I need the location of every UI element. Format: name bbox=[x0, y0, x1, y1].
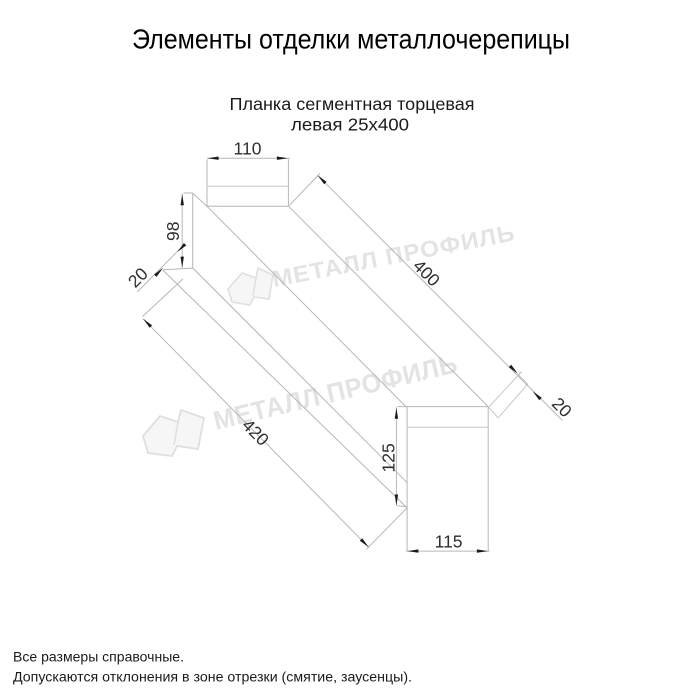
svg-text:Планка сегментная торцевая: Планка сегментная торцевая bbox=[230, 94, 475, 114]
svg-text:Допускаются отклонения в зоне: Допускаются отклонения в зоне отрезки (с… bbox=[13, 670, 412, 685]
svg-text:110: 110 bbox=[234, 139, 262, 159]
svg-text:Элементы отделки металлочерепи: Элементы отделки металлочерепицы bbox=[132, 24, 570, 55]
svg-text:125: 125 bbox=[379, 443, 399, 472]
svg-text:115: 115 bbox=[435, 532, 463, 552]
svg-text:Все размеры справочные.: Все размеры справочные. bbox=[13, 650, 184, 665]
svg-text:98: 98 bbox=[163, 222, 183, 241]
svg-text:левая 25х400: левая 25х400 bbox=[291, 115, 409, 135]
